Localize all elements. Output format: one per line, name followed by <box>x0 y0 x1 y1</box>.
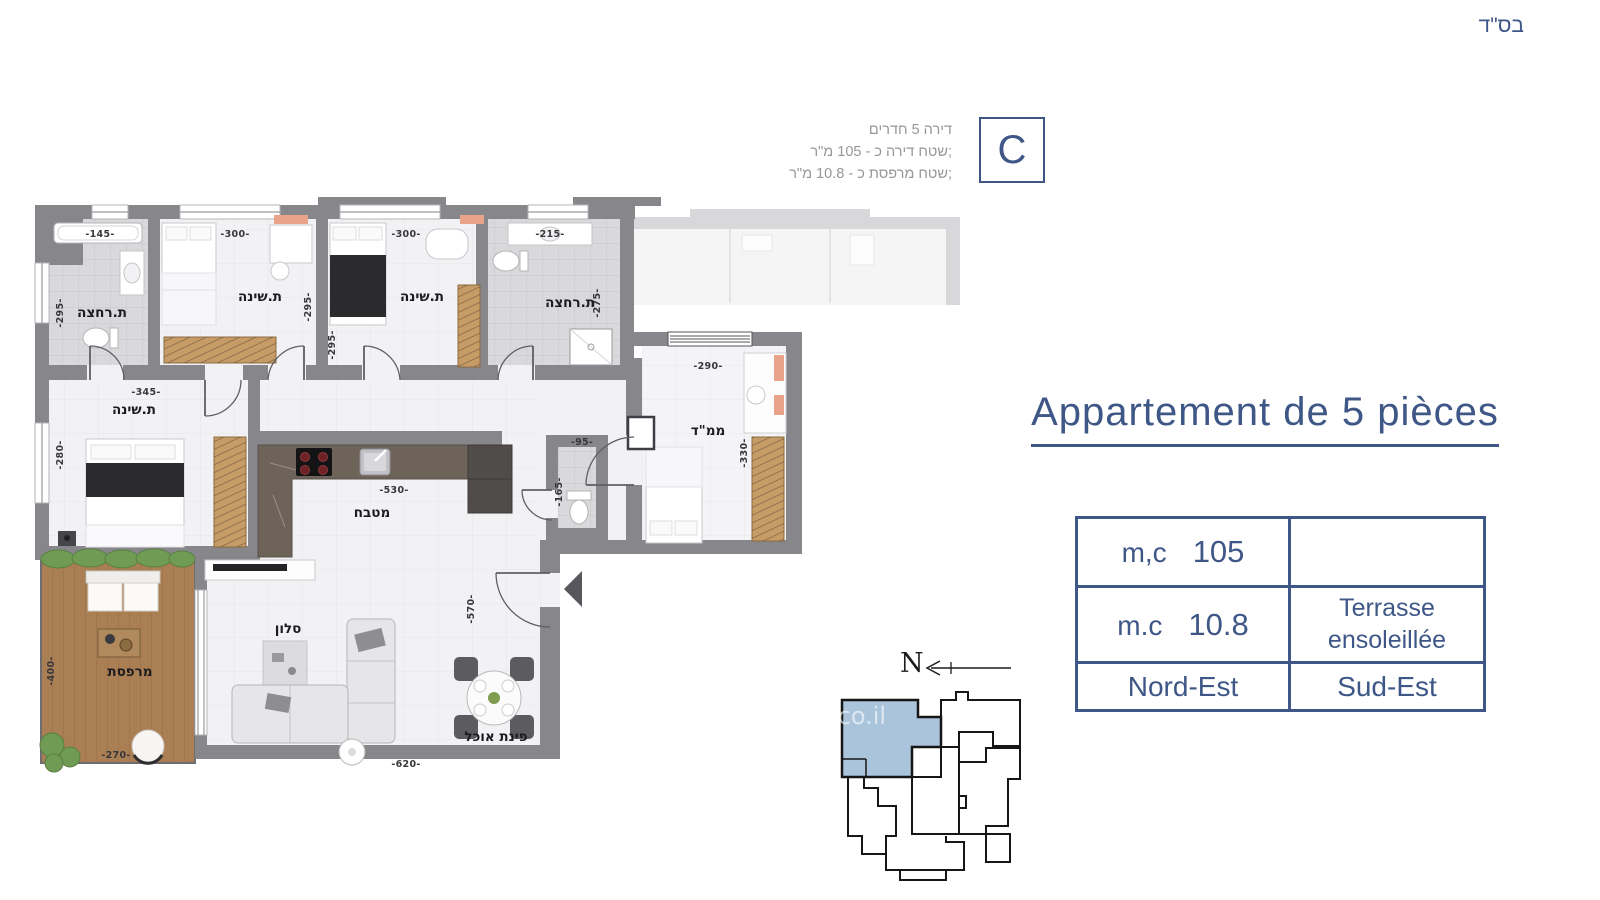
unit-description-line1: דירה 5 חדרים <box>700 119 952 141</box>
room-label-bed1: ת.שינה <box>238 289 282 305</box>
orientation-right-cell: Sud-Est <box>1290 663 1485 711</box>
terrace-word2: ensoleillée <box>1291 625 1483 656</box>
terrace-value: 10.8 <box>1188 607 1248 642</box>
desk <box>270 225 312 263</box>
table-row: m,c105 <box>1077 518 1485 587</box>
table-row: m.c10.8 Terrasse ensoleillée <box>1077 587 1485 663</box>
terrace-unit: m.c <box>1117 610 1162 641</box>
dim-wc-width: -95- <box>571 437 593 448</box>
shelf-accent <box>460 215 484 224</box>
room-label-bed2: ת.שינה <box>400 289 444 305</box>
toilet <box>110 328 118 348</box>
dim-wc-height: -165- <box>554 477 565 506</box>
unit-description-line2: שטח דירה כ - 105 מ"ר; <box>700 141 952 163</box>
shelf-accent <box>274 215 308 224</box>
dim-bed3-height: -280- <box>55 440 66 469</box>
plant <box>45 754 63 772</box>
window <box>35 423 49 503</box>
table-row: Nord-Est Sud-Est <box>1077 663 1485 711</box>
outdoor-sofa <box>86 571 160 583</box>
balcony-sliding-door <box>195 590 207 735</box>
page-title-wrap: Appartement de 5 pièces <box>1005 390 1525 447</box>
dim-bed2-width: -300- <box>391 229 420 240</box>
dim-mamad-height: -330- <box>739 438 750 467</box>
empty-cell <box>1290 518 1485 587</box>
dim-living-width: -620- <box>391 759 420 770</box>
dining-chair <box>454 657 478 681</box>
plant <box>41 550 75 568</box>
blast-window <box>628 417 654 449</box>
room-label-balcony: מרפסת <box>107 664 152 680</box>
pillow <box>91 445 131 459</box>
window <box>340 205 440 219</box>
plant <box>169 551 195 567</box>
desk <box>426 229 468 259</box>
side-table-detail <box>348 748 356 756</box>
unit-outline <box>986 834 1010 862</box>
plant <box>72 549 108 567</box>
dim-balcony-height: -400- <box>46 656 57 685</box>
unit-outline <box>886 836 964 870</box>
toilet <box>567 491 591 500</box>
window <box>528 205 588 219</box>
dim-bed3-width: -345- <box>131 387 160 398</box>
tv <box>213 564 287 571</box>
terrace-label-cell: Terrasse ensoleillée <box>1290 587 1485 663</box>
room-label-dining: פינת אוכל <box>464 729 527 745</box>
pillow <box>333 227 356 240</box>
unit-outline <box>848 777 896 854</box>
page-title: Appartement de 5 pièces <box>1031 390 1499 447</box>
dim-bed2-height: -295- <box>327 330 338 359</box>
plant <box>105 550 139 568</box>
window <box>92 205 128 219</box>
window <box>35 263 49 323</box>
toilet <box>520 251 528 271</box>
pillow <box>359 227 382 240</box>
pillow <box>135 445 175 459</box>
dim-kitchen-width: -530- <box>379 485 408 496</box>
unit-description-line3: שטח מרפסת כ - 10.8 מ"ר; <box>700 163 952 185</box>
dining-chair <box>510 657 534 681</box>
orientation-left-cell: Nord-Est <box>1077 663 1290 711</box>
pillow <box>166 227 187 240</box>
area-value: 105 <box>1193 534 1245 569</box>
dim-bath1-height: -295- <box>55 298 66 327</box>
terrace-word1: Terrasse <box>1291 593 1483 624</box>
room-label-kitchen: מטבח <box>354 505 390 521</box>
entrance-arrow-icon <box>564 571 582 607</box>
window <box>180 205 280 219</box>
room-label-bath2: ת.רחצה <box>545 295 595 311</box>
unit-outline <box>900 870 946 880</box>
rug <box>263 641 307 691</box>
unit-description: דירה 5 חדרים שטח דירה כ - 105 מ"ר; שטח מ… <box>700 119 952 185</box>
dim-bed1-width: -300- <box>220 229 249 240</box>
floor-plan: -145- -300- -300- -215- -295- -295- -295… <box>30 195 975 775</box>
neighbor-area <box>634 209 960 305</box>
room-label-bath1: ת.רחצה <box>77 305 127 321</box>
dim-balcony-width: -270- <box>101 750 130 761</box>
chair <box>271 262 289 280</box>
dim-bed1-height: -295- <box>303 292 314 321</box>
pillow <box>675 521 697 535</box>
bedroom-3-furniture <box>58 437 246 547</box>
chair <box>747 386 765 404</box>
dark-blanket <box>330 255 386 317</box>
pillow <box>190 227 211 240</box>
room-label-bed3: ת.שינה <box>112 402 156 418</box>
coffee-table <box>98 629 140 657</box>
area-unit: m,c <box>1122 537 1167 568</box>
unit-letter-badge: C <box>979 117 1045 183</box>
mamad-window-shutter <box>668 332 752 346</box>
unit-jog <box>959 796 966 808</box>
room-label-mamad: ממ"ד <box>691 423 726 439</box>
room-label-living: סלון <box>275 621 302 637</box>
dark-blanket <box>86 463 184 497</box>
terrace-area-cell: m.c10.8 <box>1077 587 1290 663</box>
dim-bath1-width: -145- <box>85 229 114 240</box>
unit-letter: C <box>998 128 1027 173</box>
plant <box>136 549 172 567</box>
pillow <box>650 521 672 535</box>
dim-mamad-width: -290- <box>693 361 722 372</box>
info-table: m,c105 m.c10.8 Terrasse ensoleillée Nord… <box>1075 516 1486 712</box>
area-cell: m,c105 <box>1077 518 1290 587</box>
bsd-text: בס"ד <box>1479 14 1524 38</box>
dim-bath2-width: -215- <box>535 229 564 240</box>
dim-entry-height: -570- <box>466 594 477 623</box>
